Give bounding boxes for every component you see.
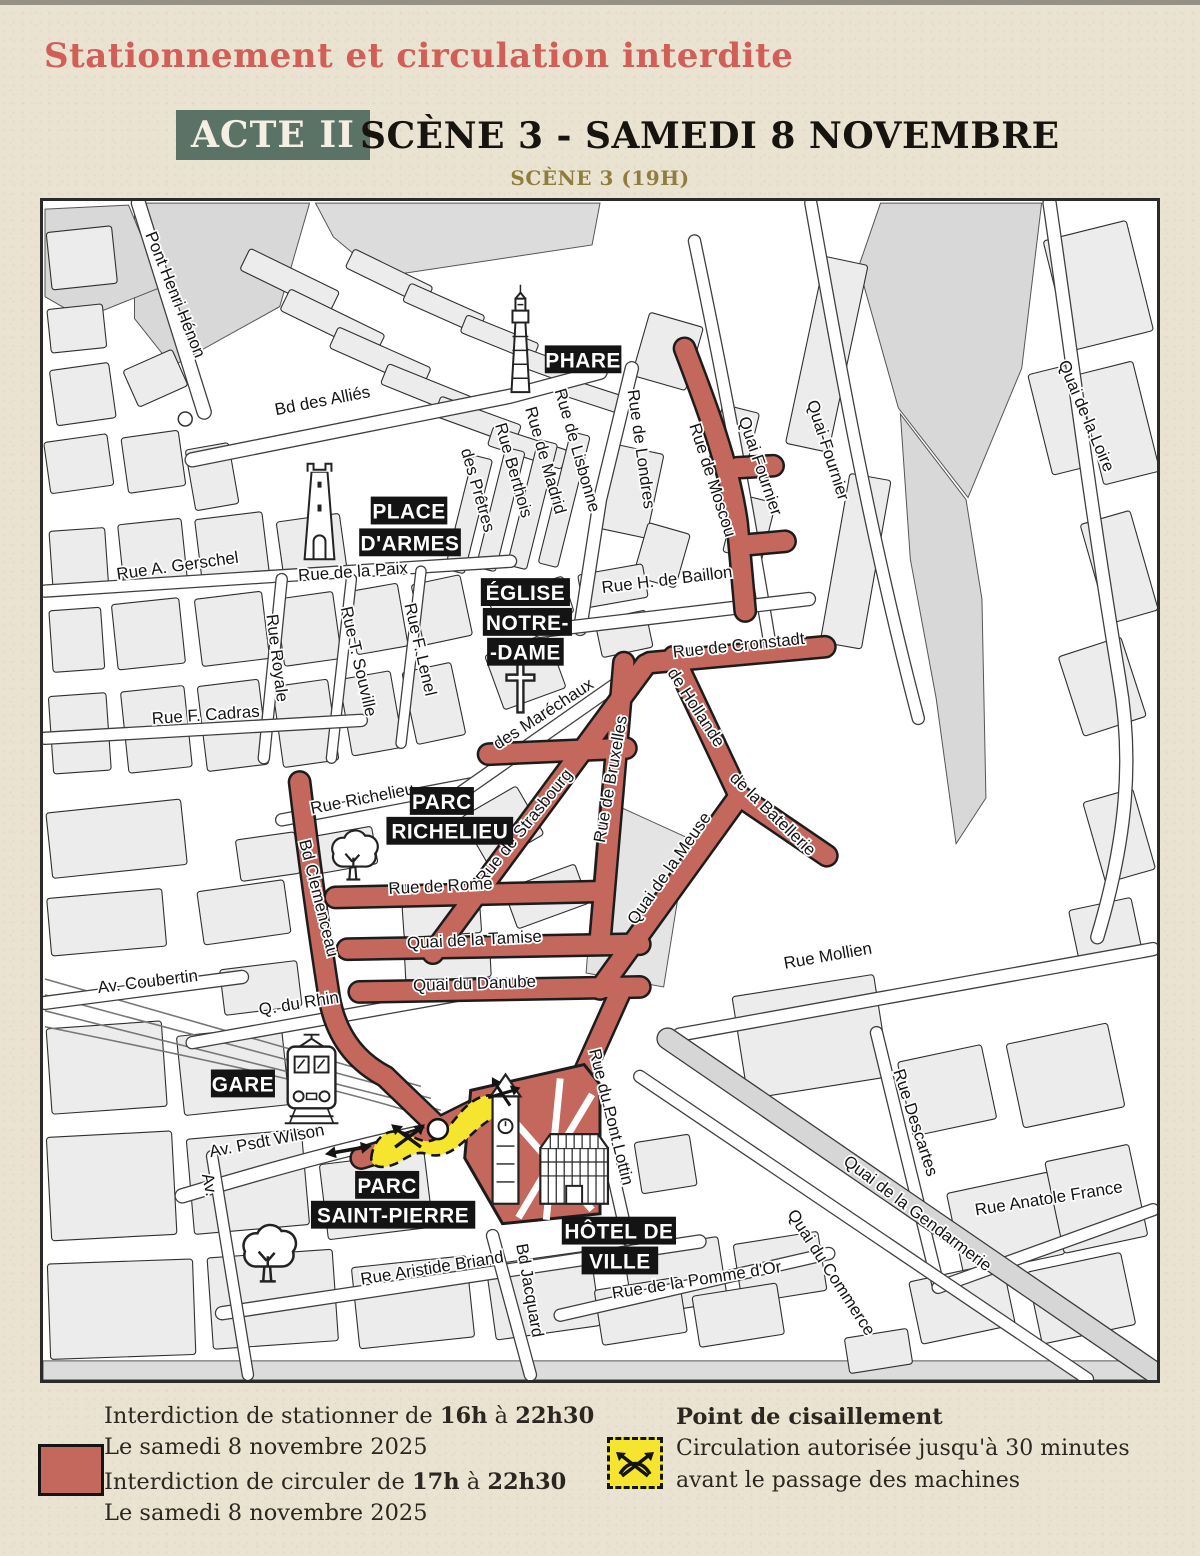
- page-title: Stationnement et circulation interdite: [44, 36, 793, 76]
- landmark-label-text: -DAME: [490, 642, 561, 665]
- legend: Interdiction de stationner de 16h à 22h3…: [0, 1383, 1200, 1556]
- city-map: Pont Henri HénonBd des Alliésdes Prêtres…: [40, 198, 1160, 1383]
- roundabout: [428, 1119, 448, 1139]
- no-driving-rule: Interdiction de circuler de 17h à 22h30: [104, 1467, 604, 1498]
- landmark-label-text: SAINT-PIERRE: [317, 1205, 469, 1228]
- shear-point-swatch: [607, 1437, 663, 1489]
- landmark-label-text: VILLE: [589, 1250, 651, 1273]
- landmark-label-text: GARE: [212, 1073, 274, 1096]
- city-map-svg: Pont Henri HénonBd des Alliésdes Prêtres…: [43, 201, 1157, 1380]
- landmark-label-text: RICHELIEU: [391, 821, 508, 844]
- no-parking-date: Le samedi 8 novembre 2025: [104, 1432, 604, 1463]
- act-badge: ACTE II: [176, 110, 370, 160]
- restricted-color-swatch: [38, 1444, 104, 1496]
- legend-shear-point: Point de cisaillement Circulation autori…: [676, 1401, 1156, 1497]
- poster: Stationnement et circulation interdite A…: [0, 0, 1200, 1556]
- landmark-label-text: ÉGLISE: [486, 582, 566, 605]
- legend-restrictions: Interdiction de stationner de 16h à 22h3…: [104, 1401, 604, 1529]
- landmark-label-text: HÔTEL DE: [564, 1220, 673, 1244]
- bottom-band: [43, 1361, 1157, 1380]
- landmark-label-text: NOTRE-: [486, 612, 569, 635]
- landmark-phare: PHARE: [545, 345, 622, 373]
- no-parking-rule: Interdiction de stationner de 16h à 22h3…: [104, 1401, 604, 1432]
- page-top-edge: [0, 0, 1200, 5]
- scene-subtitle: SCÈNE 3 - SAMEDI 8 NOVEMBRE: [360, 110, 1060, 160]
- shear-line2: avant le passage des machines: [676, 1465, 1156, 1497]
- shear-cross-legend-icon: [610, 1440, 660, 1486]
- landmark-label-text: PARC: [412, 791, 472, 814]
- landmark-gare: GARE: [211, 1069, 275, 1097]
- no-driving-date: Le samedi 8 novembre 2025: [104, 1498, 604, 1529]
- shear-title: Point de cisaillement: [676, 1401, 1156, 1433]
- landmark-label-text: D'ARMES: [361, 532, 460, 555]
- scene-time-note: SCÈNE 3 (19H): [40, 166, 1160, 190]
- landmark-label-text: PLACE: [372, 500, 445, 523]
- landmark-label-text: PARC: [357, 1175, 417, 1198]
- landmark-label-text: PHARE: [545, 349, 621, 372]
- shear-line1: Circulation autorisée jusqu'à 30 minutes: [676, 1433, 1156, 1465]
- landmark-eglise-notre-dame: ÉGLISENOTRE--DAME: [481, 578, 572, 666]
